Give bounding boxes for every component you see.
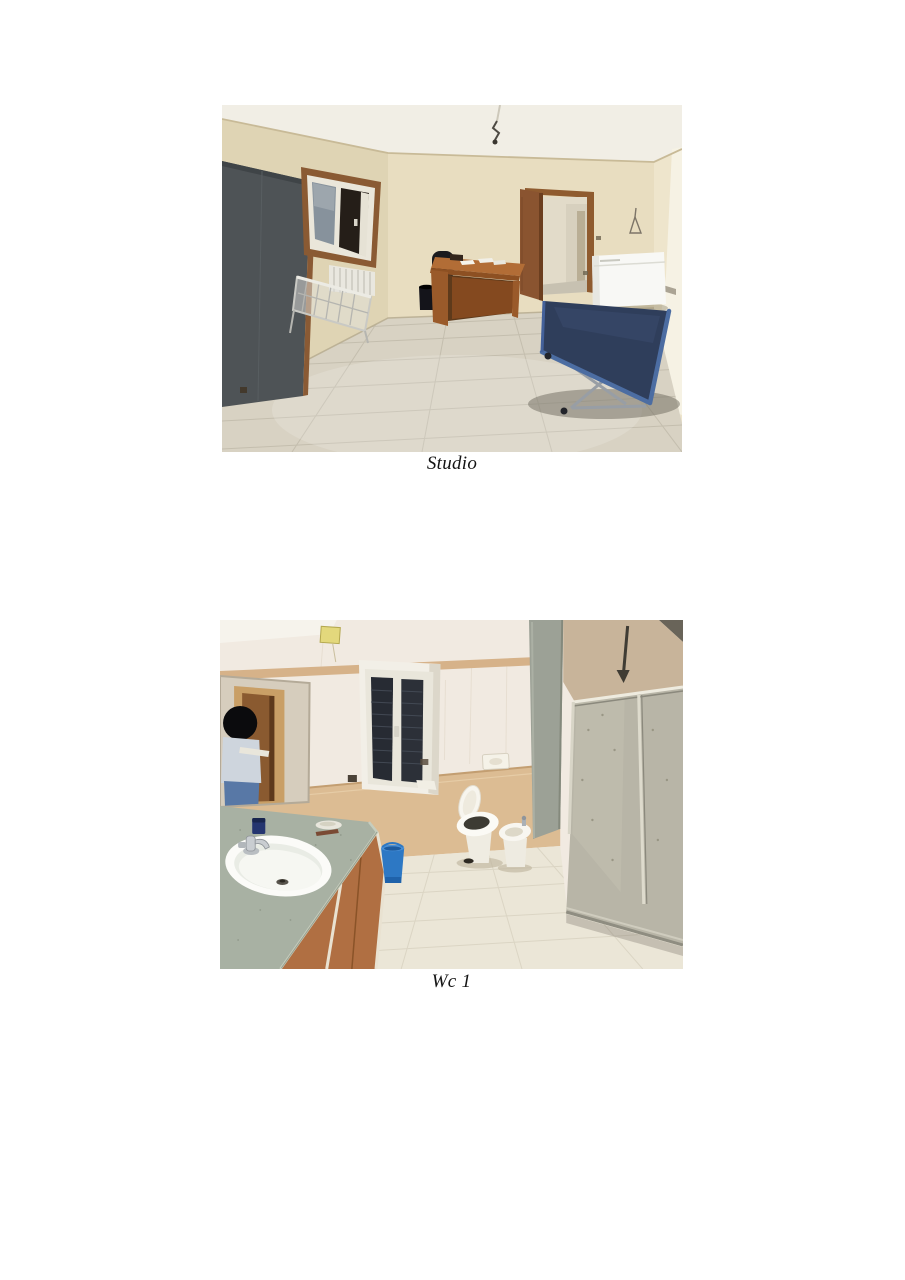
- window-handle: [354, 219, 358, 226]
- flush-plate: [482, 753, 509, 769]
- person-blurred-head: [223, 706, 257, 740]
- bathroom-illustration: [220, 620, 683, 969]
- window-handle: [394, 726, 399, 737]
- doorway: [520, 188, 594, 301]
- studio-photo: [222, 105, 682, 452]
- outlet: [348, 775, 357, 782]
- mirror: [220, 676, 310, 807]
- studio-room-illustration: [222, 105, 682, 452]
- floor-drain: [464, 859, 474, 864]
- person-jeans: [224, 781, 259, 807]
- wall-socket: [240, 387, 247, 393]
- sink-vanity: [220, 806, 385, 969]
- wall-box: [320, 626, 340, 643]
- document-page: Studio: [0, 0, 905, 1280]
- bathroom-window: [359, 660, 441, 795]
- wall-socket: [583, 271, 588, 275]
- outlet: [420, 759, 428, 765]
- wc1-photo: [220, 620, 683, 969]
- window: [301, 167, 381, 268]
- photo-caption-wc1: Wc 1: [220, 971, 683, 993]
- wall-socket: [596, 236, 601, 240]
- bucket: [381, 843, 404, 883]
- person-shirt: [221, 737, 261, 783]
- photo-caption-studio: Studio: [222, 453, 682, 475]
- dark-box: [450, 254, 463, 261]
